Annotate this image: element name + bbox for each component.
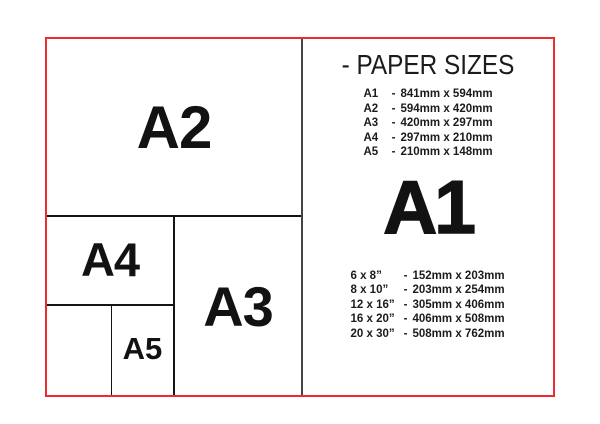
dash-separator: - <box>387 131 401 146</box>
list-item: 12 x 16” - 305mm x 406mm <box>351 298 506 312</box>
dash-separator: - <box>399 298 413 312</box>
list-item: 16 x 20” - 406mm x 508mm <box>351 312 506 326</box>
size-value: 406mm x 508mm <box>413 312 506 326</box>
a5-left-line <box>111 304 112 395</box>
size-value: 594mm x 420mm <box>401 102 493 117</box>
dash-separator: - <box>399 269 413 283</box>
list-item: A1 - 841mm x 594mm <box>364 87 493 102</box>
list-item: A3 - 420mm x 297mm <box>364 116 493 131</box>
dash-separator: - <box>387 87 401 102</box>
size-value: 210mm x 148mm <box>401 145 493 160</box>
size-name: A4 <box>364 131 387 146</box>
size-name: A3 <box>364 116 387 131</box>
size-value: 203mm x 254mm <box>413 283 506 297</box>
dash-separator: - <box>387 116 401 131</box>
sheet-a3: A3 <box>175 217 301 395</box>
size-value: 305mm x 406mm <box>413 298 506 312</box>
sheet-a4-label: A4 <box>81 232 139 287</box>
featured-a1-label: A1 <box>303 167 553 247</box>
size-name: 12 x 16” <box>351 298 399 312</box>
size-name: A1 <box>364 87 387 102</box>
dash-separator: - <box>399 312 413 326</box>
size-value: 420mm x 297mm <box>401 116 493 131</box>
list-item: 8 x 10” - 203mm x 254mm <box>351 283 506 297</box>
size-value: 297mm x 210mm <box>401 131 493 146</box>
size-name: 16 x 20” <box>351 312 399 326</box>
dash-separator: - <box>387 145 401 160</box>
sheet-a5: A5 <box>112 306 173 391</box>
dash-separator: - <box>399 283 413 297</box>
sheet-a3-label: A3 <box>203 274 273 339</box>
sheet-a2: A2 <box>47 39 301 215</box>
size-name: A2 <box>364 102 387 117</box>
panel-title: - PAPER SIZES <box>319 49 537 81</box>
sheet-a4: A4 <box>47 217 173 302</box>
size-name: 8 x 10” <box>351 283 399 297</box>
size-value: 508mm x 762mm <box>413 327 506 341</box>
size-name: 20 x 30” <box>351 327 399 341</box>
a-series-list: A1 - 841mm x 594mm A2 - 594mm x 420mm A3… <box>364 87 493 160</box>
size-value: 152mm x 203mm <box>413 269 506 283</box>
list-item: 20 x 30” - 508mm x 762mm <box>351 327 506 341</box>
size-value: 841mm x 594mm <box>401 87 493 102</box>
list-item: 6 x 8” - 152mm x 203mm <box>351 269 506 283</box>
sheet-a5-label: A5 <box>123 331 163 367</box>
info-panel: - PAPER SIZES A1 - 841mm x 594mm A2 - 59… <box>303 39 553 395</box>
list-item: A2 - 594mm x 420mm <box>364 102 493 117</box>
size-name: 6 x 8” <box>351 269 399 283</box>
sheet-a2-label: A2 <box>137 93 212 162</box>
paper-sizes-figure: A2 A4 A3 A5 - PAPER SIZES A1 - 841mm x 5… <box>45 37 555 397</box>
size-name: A5 <box>364 145 387 160</box>
list-item: A5 - 210mm x 148mm <box>364 145 493 160</box>
inch-series-list: 6 x 8” - 152mm x 203mm 8 x 10” - 203mm x… <box>351 269 506 341</box>
dash-separator: - <box>387 102 401 117</box>
list-item: A4 - 297mm x 210mm <box>364 131 493 146</box>
a2-bottom-line <box>47 215 303 217</box>
dash-separator: - <box>399 327 413 341</box>
